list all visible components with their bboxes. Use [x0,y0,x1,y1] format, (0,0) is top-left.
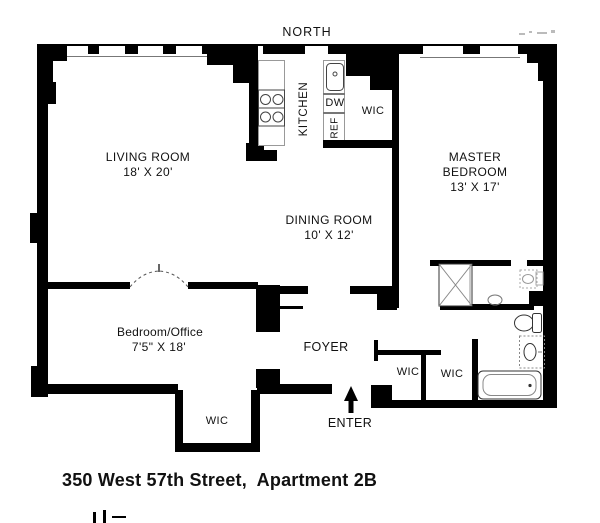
wall-top-segment [463,45,480,54]
kitchen-label: KITCHEN [298,82,310,137]
wall-bottom-right [383,400,557,408]
refrigerator-label: REF [330,117,341,138]
wall-bath-top [430,260,511,266]
bathtub-icon [478,371,541,399]
dining-room-dimensions: 10' X 12' [304,228,354,242]
wall-left-pilaster [48,82,56,104]
bottom-wic-label: WIC [206,415,229,427]
wall-top-segment [163,45,176,54]
foyer-label: FOYER [303,340,348,354]
wall-wic-divider [421,350,426,403]
wall-bottom [37,384,178,394]
wall-left [37,45,48,395]
hall-wic-left-label: WIC [397,366,420,378]
wall-bath-top [527,260,543,266]
wall-foyer-lip [278,306,303,309]
bedroom-office-dimensions: 7'5" X 18' [132,340,186,354]
master-bedroom-label-line2: BEDROOM [443,165,508,179]
wall-bottom [259,384,332,394]
wall-wic-closet-bottom [175,443,260,452]
wall-top-segment [88,45,99,54]
address-title: 350 West 57th Street, Apartment 2B [62,470,377,491]
corner-sink-icon [520,270,543,288]
wall-wic-closet-left [175,390,183,448]
bedroom-office-label: Bedroom/Office [117,325,203,339]
vanity-sink-icon [520,336,545,368]
ref-divider-line [323,112,345,114]
living-room-dimensions: 18' X 20' [123,165,173,179]
dw-divider-line [323,93,345,95]
wall-bath-mid [440,304,534,310]
floor-plan: NORTH LIVING ROOM 18' X 20' KITCHEN DW R… [0,0,600,523]
wall-hall-top [378,350,441,355]
french-doors-icon [130,264,188,287]
enter-arrow-icon [344,386,358,413]
living-room-label: LIVING ROOM [106,150,190,164]
wall-kitchen-left-end [246,150,277,161]
scan-artifact [519,30,555,35]
master-bedroom-label-line1: MASTER [449,150,501,164]
wall-dining-bottom [350,286,377,294]
wall-right [543,45,557,408]
scale-bar-icon [93,510,126,523]
wall-bedroom-office-top [48,282,130,289]
wall-wic-closet-right [251,390,260,448]
wall-wic-top [370,64,392,90]
window-sill-line [420,57,520,58]
hall-wic-right-label: WIC [441,368,464,380]
wall-bath-left [472,339,478,403]
shower-icon [439,264,472,306]
wall-left-bump [30,213,38,243]
wall-top-segment [328,45,423,54]
wall-top-segment [263,45,305,54]
wall-dining-bottom-block [256,285,280,332]
wall-bath-block [529,291,543,306]
dining-room-label: DINING ROOM [285,213,372,227]
kitchen-counter-left [258,60,285,146]
dishwasher-label: DW [325,97,344,109]
wall-dining-bottom [280,286,308,294]
kitchen-wic-label: WIC [362,105,385,117]
wall-master-left [392,54,399,308]
enter-label: ENTER [328,416,372,430]
toilet-icon [515,314,542,333]
wall-kitchen-left [249,66,258,148]
wall-wic-bottom [323,140,398,148]
master-bedroom-dimensions: 13' X 17' [450,180,500,194]
north-label: NORTH [282,25,331,39]
wall-master-left-block [377,286,397,310]
wall-bedroom-office-top [188,282,258,289]
wall-top-segment [125,45,138,54]
